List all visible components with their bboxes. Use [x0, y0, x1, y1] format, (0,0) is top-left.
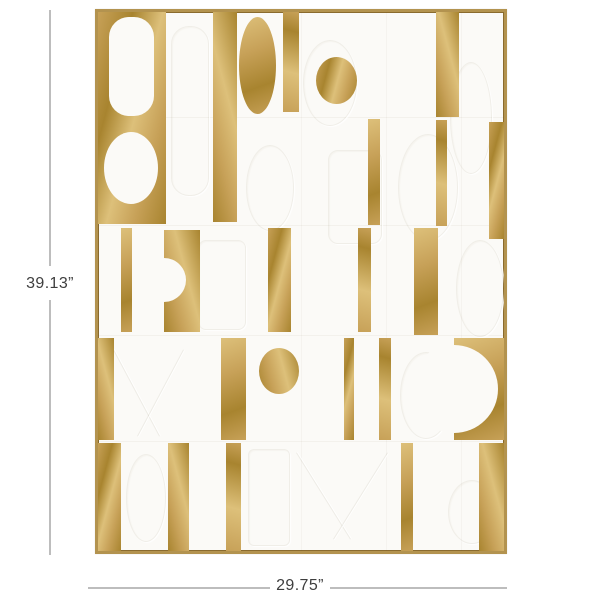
gold-stripe-band4-a	[221, 338, 246, 440]
width-dimension-line-left	[88, 587, 270, 589]
gold-stripe-band3-a	[121, 228, 132, 332]
emboss-oval-band2-left	[246, 145, 294, 231]
gold-stripe-top-mid	[283, 12, 299, 112]
white-circle-cutout	[104, 132, 158, 204]
gold-stripe-band2-mid	[368, 119, 380, 225]
emboss-rect-band3	[198, 240, 246, 330]
gold-stripe-band5-c	[401, 443, 413, 551]
gold-stripe-band5-b	[226, 443, 241, 551]
emboss-diag-band4-b	[137, 350, 184, 437]
seam-col-2	[386, 12, 387, 551]
height-dimension-line-top	[49, 10, 51, 266]
gold-stripe-band5-a	[168, 443, 189, 551]
emboss-oval-band3-right	[456, 240, 504, 337]
emboss-diag-band5-b	[333, 452, 388, 539]
gold-column-band5-left	[98, 443, 121, 551]
emboss-diag-band4-a	[113, 350, 160, 437]
gold-stripe-band3-b	[268, 228, 291, 332]
gold-column-band4-left	[98, 338, 114, 440]
gold-stripe-band2-edge	[489, 122, 504, 239]
gold-egg	[239, 17, 276, 114]
gold-block-band5-right	[479, 443, 504, 551]
product-dimension-diagram: 39.13” 29.75”	[0, 0, 600, 600]
gold-stripe-band3-c	[358, 228, 371, 332]
width-dimension-line-right	[330, 587, 507, 589]
gold-circle-top	[316, 57, 357, 104]
gold-oval-band4	[259, 348, 299, 394]
gold-stripe-band2-right	[436, 120, 447, 226]
gold-stripe-band4-b	[344, 338, 354, 440]
artwork-canvas	[98, 12, 504, 551]
gold-stripe-tall-left	[213, 12, 237, 222]
white-notch-circle	[142, 258, 186, 302]
gold-stripe-top-right-wide	[436, 12, 459, 117]
height-dimension-line-bottom	[49, 300, 51, 555]
white-semicircle-notch	[410, 345, 498, 433]
gold-stripe-band4-c	[379, 338, 391, 440]
emboss-oval-band5-left	[126, 454, 166, 542]
emboss-rect-band5	[248, 449, 290, 546]
gold-stripe-band3-d	[414, 228, 438, 335]
width-dimension-label: 29.75”	[276, 577, 324, 595]
seam-col-1	[301, 12, 302, 551]
emboss-capsule-top	[171, 26, 209, 196]
height-dimension-label: 39.13”	[26, 275, 74, 293]
emboss-oval-band2-right	[398, 134, 458, 241]
emboss-diag-band5-a	[296, 452, 351, 539]
white-capsule-cutout	[109, 17, 154, 116]
wall-art-frame	[95, 9, 507, 554]
